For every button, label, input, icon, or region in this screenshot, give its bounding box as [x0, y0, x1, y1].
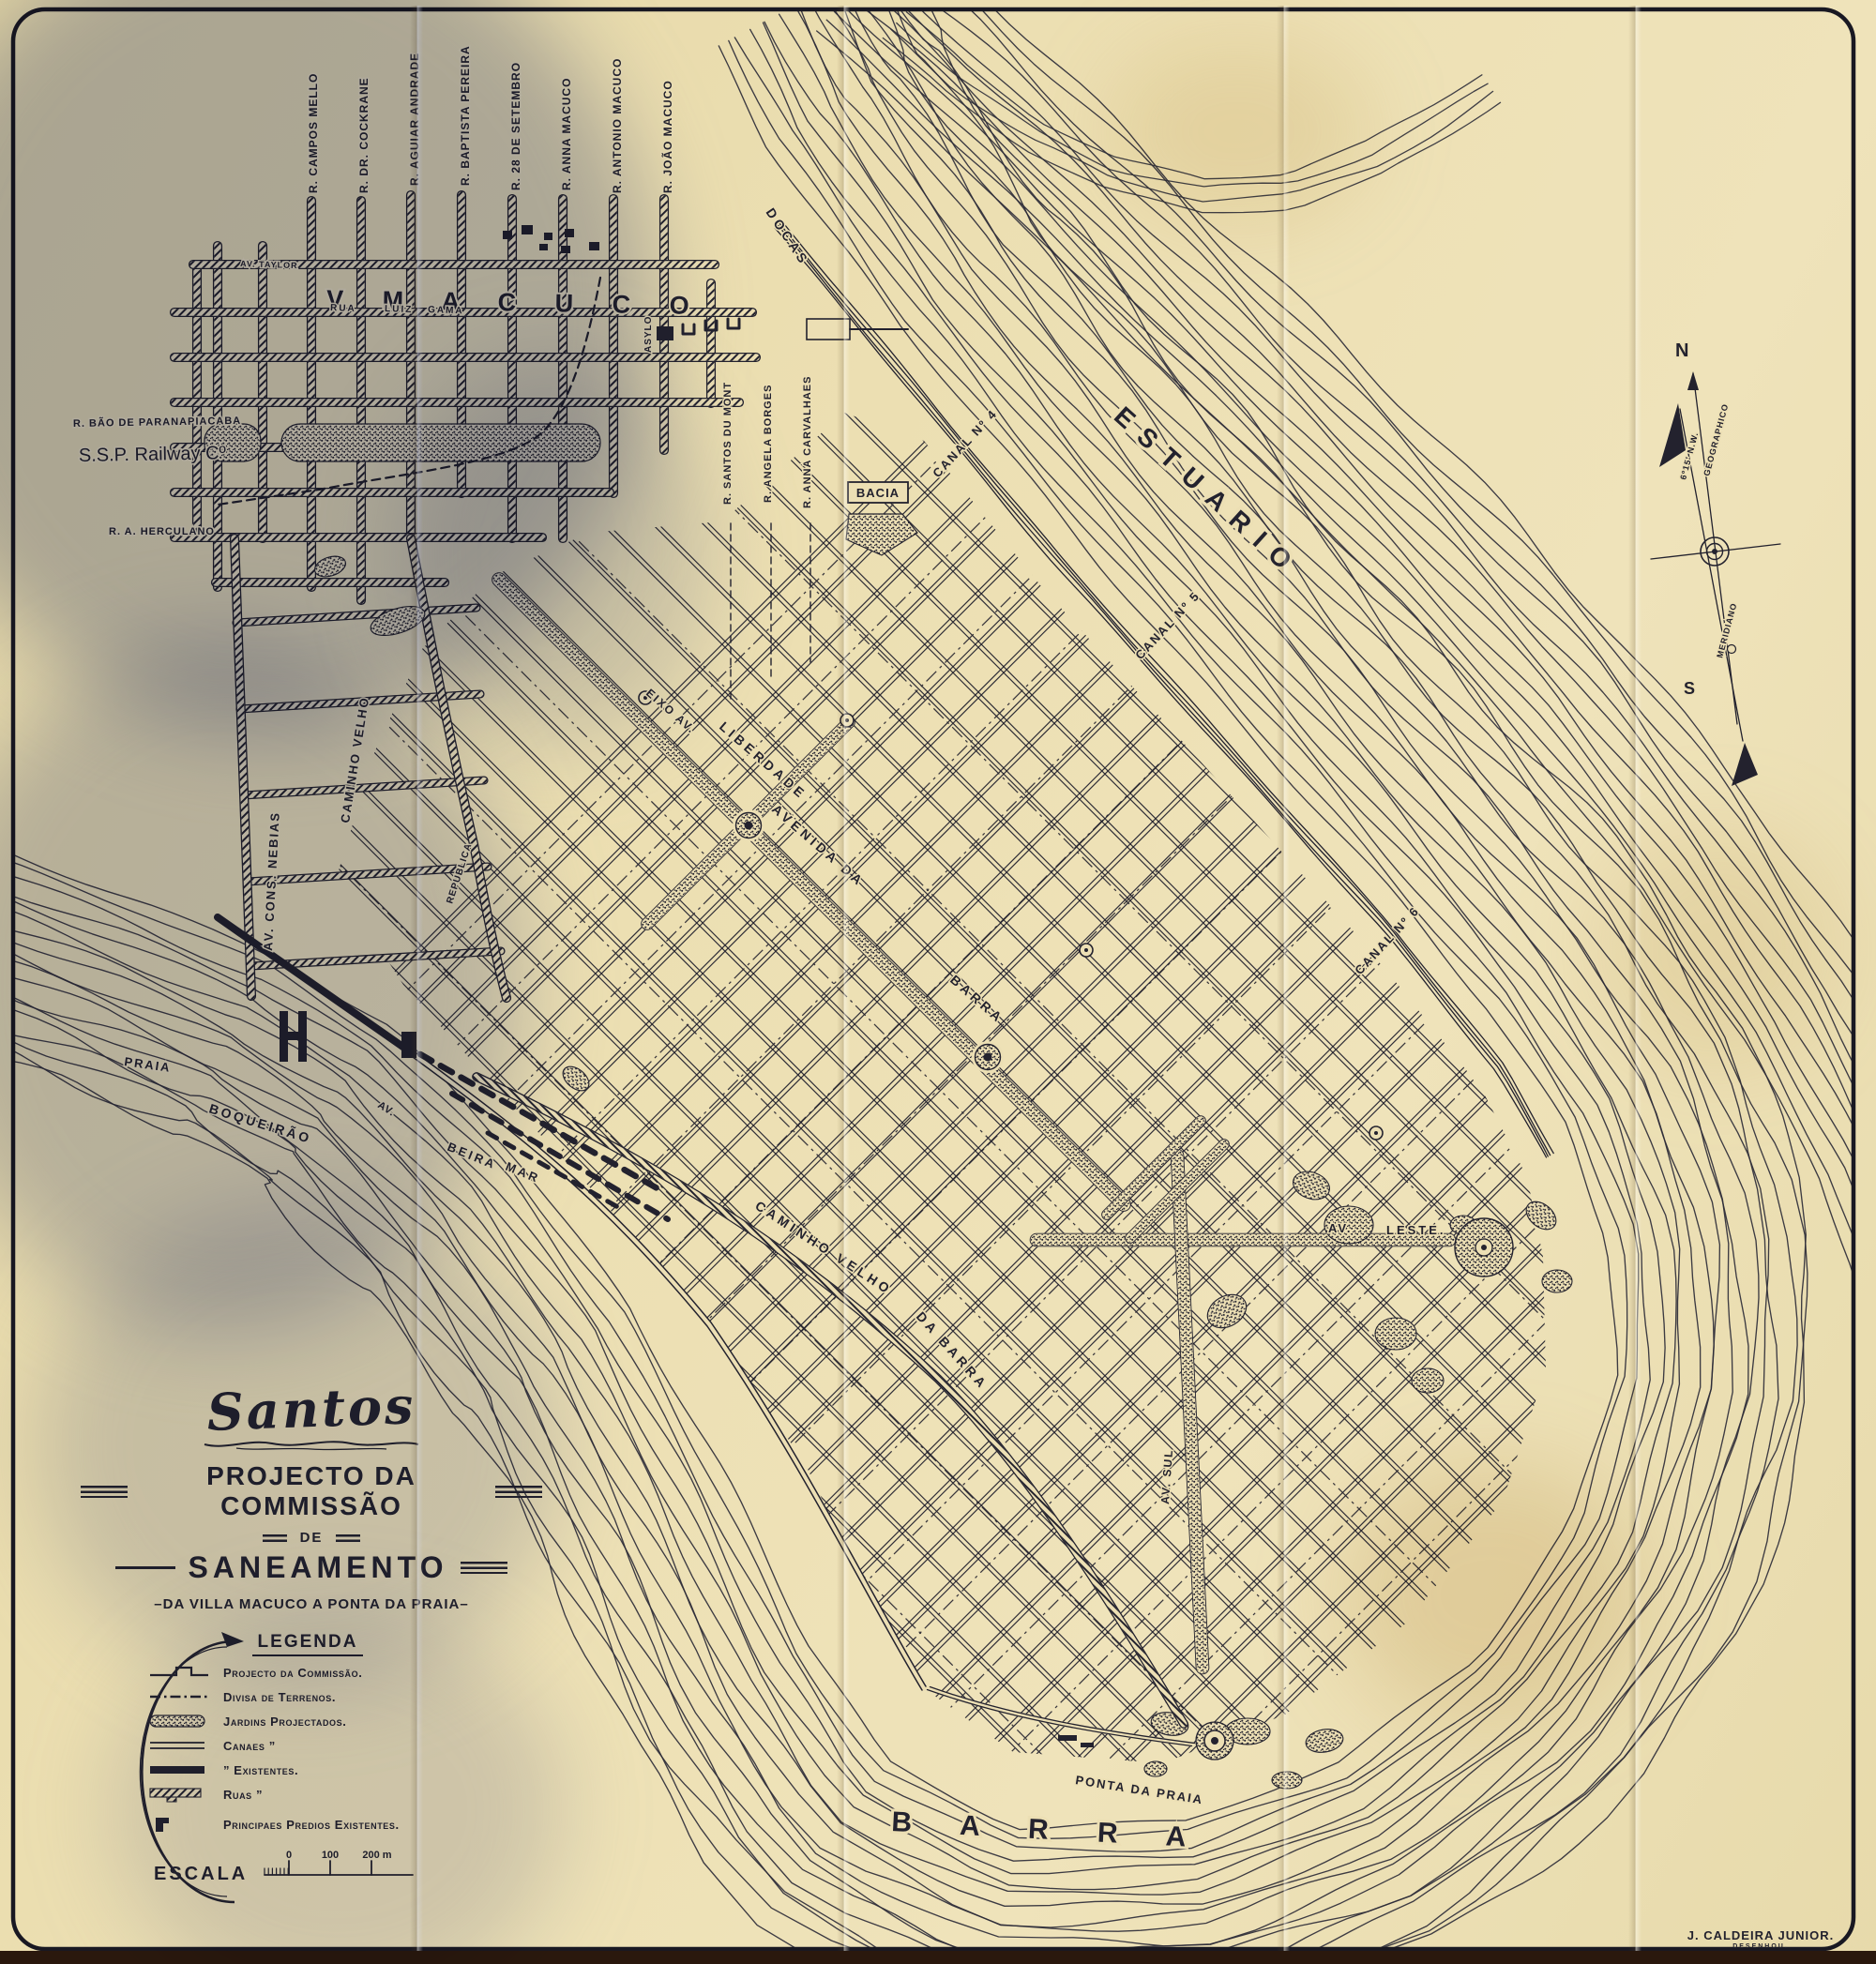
- legend-item: Projecto da Commissão.: [148, 1664, 467, 1681]
- map-label: R. AGUIAR ANDRADE: [408, 53, 421, 186]
- project-line-symbol: [148, 1664, 210, 1681]
- map-label: LESTE.: [1386, 1223, 1446, 1237]
- map-label: BACIA: [856, 486, 900, 500]
- map-sheet: R. CAMPOS MELLOR. DR. COCKRANER. AGUIAR …: [0, 0, 1876, 1964]
- stipple-bar-symbol: [148, 1713, 210, 1730]
- scale: ESCALA 0100200 m: [154, 1850, 467, 1885]
- map-label: N: [1675, 340, 1688, 361]
- scale-tick-label: 200 m: [363, 1850, 392, 1861]
- map-label: R. CAMPOS MELLO: [307, 73, 320, 193]
- triple-line-decoration: [336, 1534, 360, 1542]
- map-label: B A R R A: [891, 1806, 1208, 1854]
- scale-tick-label: 0: [286, 1850, 292, 1861]
- legend-item: Ruas ”: [148, 1786, 467, 1803]
- map-label: R. SANTOS DU MONT: [722, 382, 734, 505]
- solid-bar-symbol: [148, 1761, 210, 1778]
- map-label: AVENIDA DA: [769, 801, 868, 889]
- map-label: GAMA: [428, 305, 464, 316]
- hatch-bar-symbol: [148, 1786, 210, 1803]
- map-label: REPUBLICA: [445, 841, 474, 904]
- map-label: R. ANNA CARVALHAES: [802, 376, 813, 508]
- map-label: MAR: [504, 1159, 542, 1186]
- legend-item: Divisa de Terrenos.: [148, 1688, 467, 1705]
- double-line-symbol: [148, 1737, 210, 1754]
- title-block: Santos PROJECTO DA COMMISSÃO DE SANEAMEN…: [81, 1379, 542, 1612]
- map-label: R. JOÃO MACUCO: [660, 80, 674, 193]
- title-row-3: SANEAMENTO: [81, 1550, 542, 1585]
- legend-label: Ruas ”: [223, 1788, 263, 1802]
- map-label: R. 28 DE SETEMBRO: [509, 62, 522, 190]
- map-label: ASYLO: [643, 316, 654, 353]
- map-label: R. ANNA MACUCO: [560, 78, 573, 190]
- map-label: S: [1684, 679, 1695, 698]
- map-label: CAMINHO VELHO: [338, 695, 371, 823]
- map-label: DA BARRA: [914, 1308, 991, 1393]
- triple-line-decoration: [461, 1562, 507, 1574]
- legend-item: Jardins Projectados.: [148, 1713, 467, 1730]
- map-label: CANAL Nº 5: [1132, 588, 1203, 662]
- map-label: R. ANTONIO MACUCO: [611, 58, 624, 193]
- credit-role: DESENHOU.: [1672, 1943, 1850, 1950]
- triple-line-decoration: [495, 1486, 542, 1498]
- triple-line-decoration: [263, 1534, 287, 1542]
- map-label: AV.: [375, 1099, 397, 1119]
- title-line-1: PROJECTO DA COMMISSÃO: [141, 1461, 482, 1521]
- map-title: Santos: [80, 1370, 543, 1446]
- map-label: LUIZ: [385, 304, 414, 315]
- map-label: RUA: [330, 303, 356, 314]
- map-label: R. A. HERCULANO: [109, 526, 215, 537]
- map-label: R. BAPTISTA PEREIRA: [459, 45, 472, 186]
- title-row-1: PROJECTO DA COMMISSÃO: [81, 1461, 542, 1521]
- legend-label: Jardins Projectados.: [223, 1715, 346, 1729]
- photo-edge: [0, 1951, 1876, 1964]
- legend-item: Principaes Predios Existentes.: [148, 1816, 467, 1833]
- legend-label: ” Existentes.: [223, 1763, 298, 1777]
- legend-label: Principaes Predios Existentes.: [223, 1818, 400, 1832]
- map-label: PONTA DA PRAIA: [1075, 1773, 1205, 1806]
- legend-heading: LEGENDA: [252, 1632, 364, 1656]
- title-row-2: DE: [81, 1530, 542, 1546]
- line-decoration: [115, 1566, 175, 1569]
- credit: J. CALDEIRA JUNIOR. DESENHOU.: [1672, 1928, 1850, 1950]
- map-label: S.S.P. Railway Cº: [79, 443, 227, 466]
- map-label: AV.: [1328, 1221, 1353, 1235]
- scale-label: ESCALA: [154, 1864, 248, 1885]
- legend-label: Canaes ”: [223, 1739, 276, 1753]
- credit-name: J. CALDEIRA JUNIOR.: [1672, 1928, 1850, 1942]
- legend-label: Projecto da Commissão.: [223, 1666, 362, 1680]
- scale-tick-label: 100: [322, 1850, 339, 1861]
- dash-dot-symbol: [148, 1688, 210, 1705]
- legend: LEGENDA Projecto da Commissão. Divisa de…: [148, 1632, 467, 1885]
- legend-item: ” Existentes.: [148, 1761, 467, 1778]
- title-line-2: DE: [300, 1530, 324, 1546]
- map-label: R. ANGELA BORGES: [763, 385, 774, 503]
- subtitle: –DA VILLA MACUCO A PONTA DA PRAIA–: [81, 1596, 542, 1612]
- map-label: CANAL Nº 6: [1352, 903, 1422, 977]
- map-label: AV. SUL: [1158, 1448, 1175, 1504]
- legend-item: Canaes ”: [148, 1737, 467, 1754]
- legend-label: Divisa de Terrenos.: [223, 1690, 336, 1704]
- map-label: LIBERDADE: [717, 718, 809, 802]
- map-label: DOCAS: [764, 205, 813, 268]
- triple-line-decoration: [81, 1486, 128, 1498]
- building-symbol: [148, 1816, 210, 1833]
- map-label: R. DR. COCKRANE: [357, 77, 371, 193]
- title-line-3: SANEAMENTO: [189, 1550, 448, 1585]
- map-label: GEOGRAPHICO: [1702, 402, 1730, 476]
- scale-bar: 0100200 m: [261, 1850, 428, 1885]
